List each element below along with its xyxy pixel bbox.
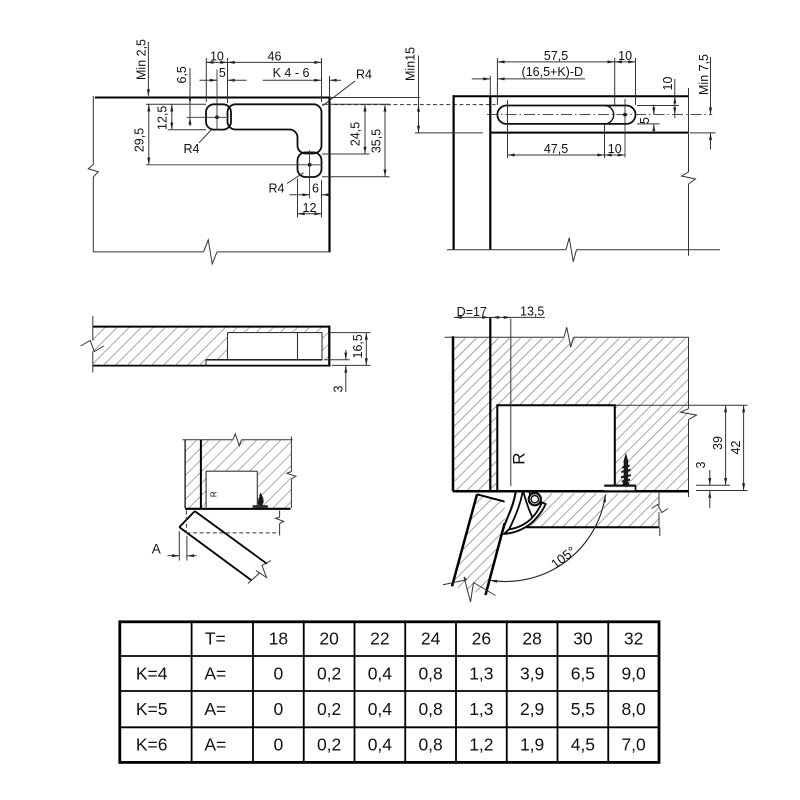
svg-text:0,8: 0,8 — [418, 663, 442, 683]
svg-text:A=: A= — [204, 663, 226, 683]
svg-text:K=5: K=5 — [136, 699, 168, 719]
svg-text:3: 3 — [694, 462, 708, 469]
svg-text:30: 30 — [573, 629, 593, 649]
svg-text:T=: T= — [205, 629, 226, 649]
svg-text:A=: A= — [204, 699, 226, 719]
svg-text:R4: R4 — [184, 142, 200, 156]
svg-text:K=4: K=4 — [136, 663, 168, 683]
svg-text:1,9: 1,9 — [520, 735, 544, 755]
svg-text:28: 28 — [522, 629, 541, 649]
svg-text:46: 46 — [268, 49, 282, 63]
svg-text:12,5: 12,5 — [156, 106, 170, 130]
svg-text:22: 22 — [370, 629, 389, 649]
svg-text:32: 32 — [624, 629, 643, 649]
svg-text:0,4: 0,4 — [368, 699, 393, 719]
svg-text:R4: R4 — [356, 68, 372, 82]
svg-text:0,2: 0,2 — [317, 699, 341, 719]
svg-text:Min 7,5: Min 7,5 — [697, 54, 711, 95]
svg-text:47,5: 47,5 — [544, 142, 568, 156]
svg-text:K=6: K=6 — [136, 735, 168, 755]
svg-text:35,5: 35,5 — [369, 129, 383, 153]
svg-text:12: 12 — [303, 201, 317, 215]
svg-text:29,5: 29,5 — [132, 128, 146, 152]
svg-text:A: A — [152, 542, 161, 557]
svg-text:3: 3 — [332, 386, 346, 393]
svg-text:5,5: 5,5 — [571, 699, 595, 719]
svg-text:39: 39 — [711, 436, 725, 450]
svg-text:R: R — [510, 452, 529, 464]
svg-text:9,0: 9,0 — [621, 663, 646, 683]
svg-text:0: 0 — [274, 663, 284, 683]
svg-text:8,0: 8,0 — [621, 699, 646, 719]
svg-text:0: 0 — [274, 735, 284, 755]
svg-text:0,8: 0,8 — [418, 699, 442, 719]
svg-text:0,2: 0,2 — [317, 735, 341, 755]
svg-text:1,2: 1,2 — [469, 735, 493, 755]
svg-text:26: 26 — [472, 629, 491, 649]
svg-text:3,9: 3,9 — [520, 663, 544, 683]
svg-text:20: 20 — [319, 629, 339, 649]
svg-text:0,4: 0,4 — [368, 735, 393, 755]
svg-text:R: R — [210, 491, 219, 497]
svg-text:10: 10 — [210, 49, 224, 63]
svg-text:0: 0 — [274, 699, 284, 719]
svg-text:A=: A= — [204, 735, 226, 755]
svg-text:5: 5 — [638, 117, 652, 124]
svg-text:7,0: 7,0 — [621, 735, 646, 755]
svg-text:10: 10 — [618, 49, 632, 63]
svg-text:1,3: 1,3 — [469, 699, 493, 719]
svg-text:4,5: 4,5 — [571, 735, 595, 755]
svg-text:R4: R4 — [269, 182, 285, 196]
svg-text:0,2: 0,2 — [317, 663, 341, 683]
svg-text:6,5: 6,5 — [571, 663, 595, 683]
svg-text:(16,5+K)-D: (16,5+K)-D — [522, 65, 583, 79]
svg-text:13,5: 13,5 — [520, 304, 544, 318]
svg-text:0,4: 0,4 — [368, 663, 393, 683]
svg-text:Min 2,5: Min 2,5 — [135, 39, 149, 80]
svg-text:Min15: Min15 — [404, 47, 418, 81]
svg-text:24: 24 — [421, 629, 441, 649]
svg-text:2,9: 2,9 — [520, 699, 544, 719]
svg-text:K 4 - 6: K 4 - 6 — [273, 66, 310, 80]
svg-text:6,5: 6,5 — [175, 66, 189, 83]
svg-text:0,8: 0,8 — [418, 735, 442, 755]
svg-text:18: 18 — [269, 629, 288, 649]
svg-text:10: 10 — [608, 142, 622, 156]
svg-text:D=17: D=17 — [457, 305, 487, 319]
svg-text:5: 5 — [219, 66, 226, 80]
svg-text:10: 10 — [661, 77, 675, 91]
svg-text:57,5: 57,5 — [544, 49, 568, 63]
svg-text:16,5: 16,5 — [351, 334, 365, 358]
svg-text:6: 6 — [312, 182, 319, 196]
svg-text:24,5: 24,5 — [348, 122, 362, 146]
svg-text:42: 42 — [729, 441, 743, 455]
svg-text:1,3: 1,3 — [469, 663, 493, 683]
